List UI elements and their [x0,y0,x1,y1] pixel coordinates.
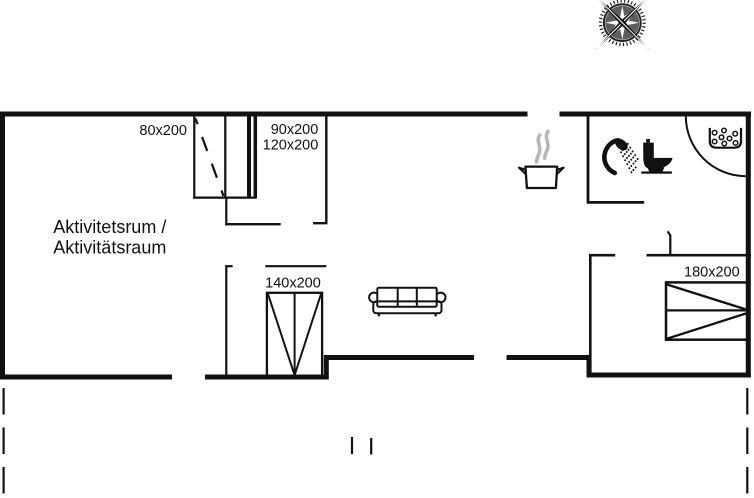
svg-text:Aktivitetsrum /: Aktivitetsrum / [53,217,166,237]
svg-text:Aktivitätsraum: Aktivitätsraum [53,237,166,257]
svg-text:90x200: 90x200 [271,122,319,138]
svg-text:140x200: 140x200 [265,275,321,291]
svg-text:180x200: 180x200 [684,265,740,281]
svg-text:80x200: 80x200 [139,123,187,139]
svg-text:120x200: 120x200 [263,137,319,153]
